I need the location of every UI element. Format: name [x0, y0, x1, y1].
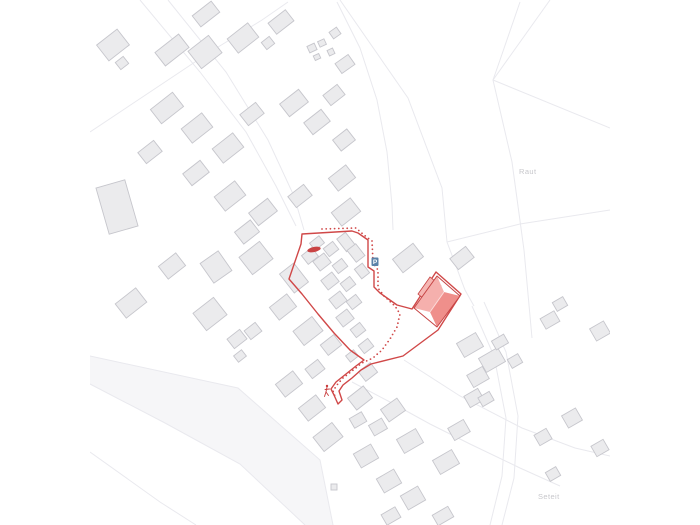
building-footprint [590, 321, 611, 341]
building-footprint [331, 198, 360, 226]
building-footprint [234, 350, 247, 362]
building-footprint [329, 291, 347, 309]
building-footprint [323, 241, 339, 256]
building-footprint [507, 354, 522, 369]
building-footprint [321, 272, 339, 290]
map-label: Seteit [538, 492, 560, 501]
building-footprint [305, 359, 325, 378]
building-footprint [369, 418, 388, 436]
building-footprint [183, 160, 210, 185]
building-footprint [318, 39, 327, 47]
building-footprint [335, 54, 355, 73]
building-footprint [313, 53, 321, 60]
building-footprint [244, 322, 262, 339]
building-footprint [115, 288, 147, 318]
building-footprint [158, 253, 185, 279]
building-footprint [275, 371, 302, 397]
building-footprint [331, 484, 337, 490]
building-footprint [491, 334, 508, 350]
svg-text:P: P [373, 259, 378, 266]
building-footprint [235, 220, 260, 244]
building-footprint [432, 450, 459, 475]
building-footprint [545, 467, 560, 482]
building-footprint [562, 408, 583, 428]
building-footprint [307, 43, 317, 53]
building-footprint [227, 329, 247, 348]
building-footprint [328, 165, 355, 191]
highlighted-building [414, 276, 460, 327]
building-footprint [200, 251, 232, 283]
building-footprint [212, 133, 244, 163]
building-footprint [304, 109, 331, 134]
building-footprint [552, 297, 567, 312]
building-footprint [400, 486, 425, 510]
building-footprint [280, 263, 309, 293]
building-footprint [456, 333, 483, 358]
building-footprint [97, 29, 130, 61]
buildings-layer [96, 1, 610, 525]
building-footprint [214, 181, 246, 211]
building-footprint [249, 198, 278, 225]
building-footprint [288, 184, 312, 207]
building-footprint [340, 276, 356, 291]
building-footprint [115, 56, 128, 69]
building-footprint [540, 311, 560, 329]
building-footprint [332, 258, 348, 273]
building-footprint [349, 412, 367, 429]
building-footprint [358, 338, 374, 353]
building-footprint [261, 36, 274, 49]
building-footprint [353, 444, 378, 468]
pedestrian-icon [325, 385, 330, 397]
building-footprint [591, 439, 609, 456]
building-footprint [333, 129, 356, 151]
parking-icon: P [372, 258, 379, 267]
building-footprint [298, 395, 325, 421]
building-footprint [448, 419, 471, 440]
building-footprint [348, 386, 373, 410]
building-footprint [350, 322, 366, 337]
building-footprint [192, 1, 220, 27]
building-footprint [293, 317, 323, 346]
building-footprint [269, 294, 296, 320]
map-layers: PRautSeteit [90, 0, 610, 525]
building-footprint [155, 34, 189, 66]
site-plan-page: PRautSeteit [0, 0, 700, 525]
building-footprint [313, 423, 343, 452]
building-footprint [181, 113, 213, 143]
building-footprint [193, 297, 227, 330]
building-footprint [329, 27, 341, 39]
building-footprint [381, 398, 406, 422]
building-footprint [96, 180, 138, 234]
building-footprint [280, 89, 309, 116]
building-footprint [393, 243, 424, 272]
building-footprint [450, 246, 474, 269]
map-label: Raut [519, 167, 537, 176]
building-footprint [432, 506, 454, 525]
building-footprint [381, 507, 401, 525]
building-footprint [346, 294, 362, 309]
building-footprint [323, 84, 345, 105]
site-plan-svg: PRautSeteit [0, 0, 700, 525]
building-footprint [227, 23, 259, 53]
building-footprint [396, 429, 423, 454]
building-footprint [240, 102, 264, 125]
building-footprint [336, 309, 354, 327]
building-footprint [376, 469, 401, 493]
building-footprint [327, 48, 335, 56]
building-footprint [534, 428, 552, 445]
building-footprint [150, 92, 183, 123]
building-footprint [138, 140, 162, 163]
building-footprint [239, 241, 273, 274]
